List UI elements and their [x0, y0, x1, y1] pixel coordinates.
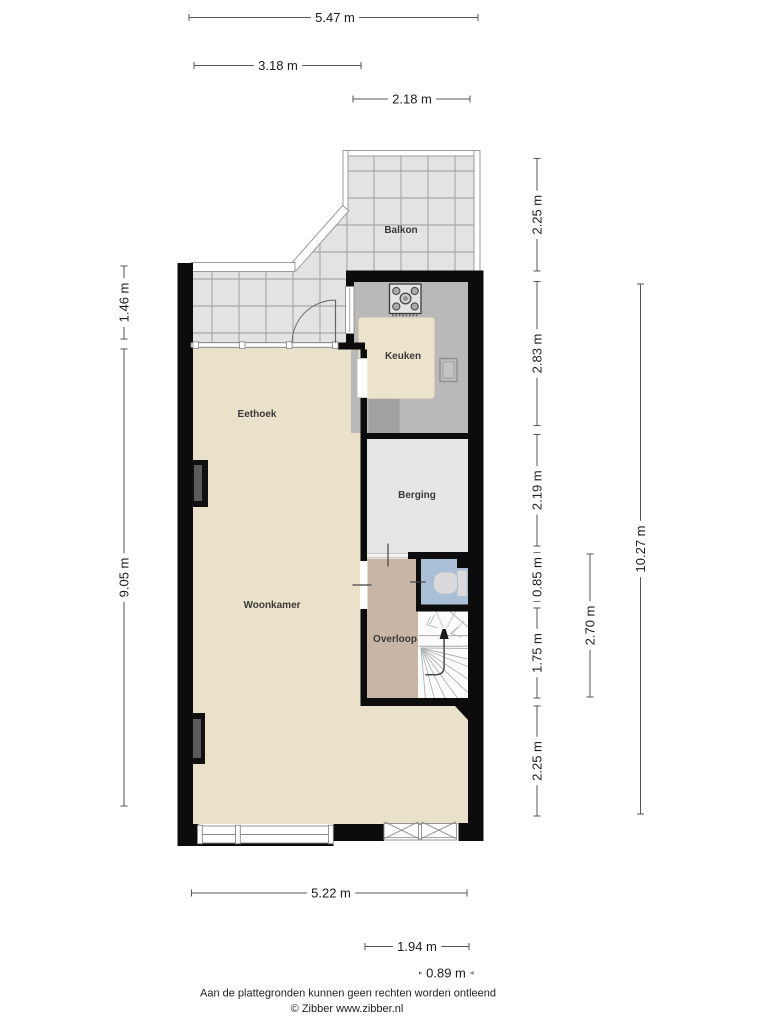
svg-text:© Zibber www.zibber.nl: © Zibber www.zibber.nl — [291, 1003, 404, 1015]
svg-text:5.22 m: 5.22 m — [311, 885, 351, 900]
svg-text:1.94 m: 1.94 m — [397, 939, 437, 954]
svg-text:Balkon: Balkon — [384, 225, 417, 236]
svg-text:2.70 m: 2.70 m — [582, 606, 597, 646]
svg-text:10.27 m: 10.27 m — [633, 526, 648, 573]
svg-text:Berging: Berging — [398, 490, 436, 501]
svg-text:2.18 m: 2.18 m — [392, 91, 432, 106]
svg-text:Keuken: Keuken — [385, 351, 421, 362]
svg-text:Woonkamer: Woonkamer — [243, 600, 300, 611]
svg-text:9.05 m: 9.05 m — [116, 558, 131, 598]
svg-text:Overloop: Overloop — [373, 634, 417, 645]
svg-text:Eethoek: Eethoek — [238, 409, 277, 420]
svg-text:0.89 m: 0.89 m — [426, 965, 466, 980]
svg-text:2.25 m: 2.25 m — [529, 741, 544, 781]
svg-text:1.75 m: 1.75 m — [529, 633, 544, 673]
svg-text:3.18 m: 3.18 m — [258, 58, 298, 73]
svg-text:1.46 m: 1.46 m — [116, 283, 131, 323]
svg-text:Aan de plattegronden kunnen ge: Aan de plattegronden kunnen geen rechten… — [200, 988, 496, 1000]
svg-text:5.47 m: 5.47 m — [315, 10, 355, 25]
svg-text:2.25 m: 2.25 m — [529, 195, 544, 235]
svg-text:2.83 m: 2.83 m — [529, 334, 544, 374]
svg-text:0.85 m: 0.85 m — [529, 557, 544, 597]
svg-text:2.19 m: 2.19 m — [529, 470, 544, 510]
